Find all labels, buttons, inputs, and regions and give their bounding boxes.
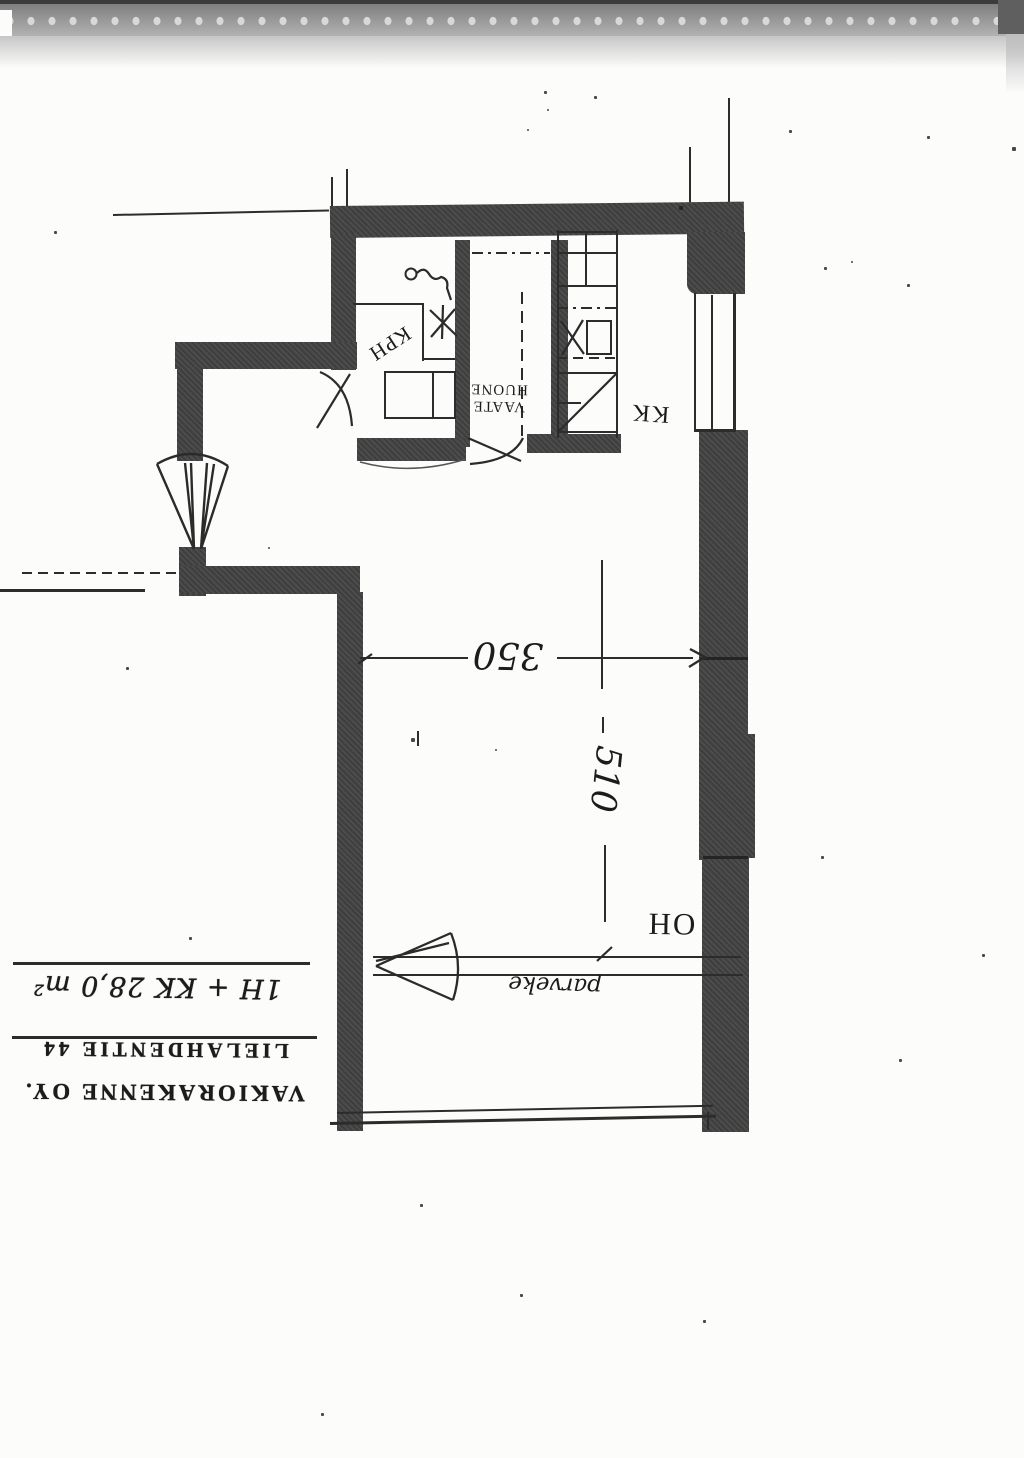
dim-510-line-a — [601, 560, 603, 689]
scan-corner-shade — [998, 0, 1024, 34]
scan-right-shade — [1006, 34, 1024, 94]
scan-speck — [824, 267, 827, 270]
dim-510-line-b — [602, 717, 604, 733]
kph-shower-divider — [432, 373, 434, 417]
vaate-dashdot-line — [472, 252, 550, 254]
room-label-kk: KK — [625, 394, 675, 429]
plan-mark-dash — [417, 731, 419, 746]
binding-holes-strip — [0, 4, 1024, 36]
scan-speck — [547, 109, 549, 111]
kph-sink-icon — [430, 305, 457, 339]
kitchen-line-5 — [557, 402, 581, 404]
kph-counter-line — [424, 358, 455, 360]
toilet-icon — [406, 269, 417, 280]
kitchen-line-top — [557, 231, 618, 233]
scan-speck — [54, 231, 57, 234]
balcony-rail-line-1 — [337, 1105, 713, 1114]
window-line-2 — [711, 295, 713, 432]
wall-entry-top — [175, 342, 357, 369]
scan-speck — [703, 1320, 706, 1323]
scan-speck — [851, 261, 853, 263]
scan-speck — [821, 856, 824, 859]
scan-speck — [594, 96, 597, 99]
dim-510-text: 510 — [576, 743, 635, 814]
toilet-outline — [417, 270, 451, 300]
kitchen-dashdot — [557, 307, 617, 309]
kitchen-line-bottom — [557, 431, 618, 433]
wall-hall-bottom-a — [357, 438, 466, 461]
scan-speck — [268, 547, 270, 549]
balcony-wall-line-1 — [373, 956, 741, 958]
scan-notch — [0, 10, 12, 36]
company-text: VAKIORAKENNE OY. — [8, 1077, 320, 1108]
wall-right-joint-2 — [703, 856, 748, 859]
scan-speck — [520, 1294, 523, 1297]
wall-right-joint-1 — [700, 657, 748, 660]
kph-shower-box — [384, 371, 456, 419]
kitchen-line-4 — [557, 372, 618, 374]
window-line-1 — [694, 293, 696, 432]
scan-speck — [789, 130, 792, 133]
dim-350-line-a — [360, 657, 468, 659]
scan-speck — [907, 284, 910, 287]
scan-speck — [544, 91, 547, 94]
entry-door-swing — [157, 454, 228, 549]
exterior-line-up-1 — [689, 147, 691, 208]
kitchen-counter-box — [586, 320, 612, 355]
wall-living-left — [337, 592, 363, 1131]
kitchen-cabinet-left-edge — [557, 230, 559, 438]
room-label-parveke: parveke — [496, 967, 613, 1003]
room-label-kph: KPH — [357, 314, 424, 375]
scan-speck — [982, 954, 985, 957]
balcony-rail-cross — [707, 1112, 709, 1130]
scan-fade-shade — [0, 36, 1024, 68]
wall-right-corner-block — [687, 232, 745, 294]
scan-speck — [527, 129, 529, 131]
balcony-door-swing — [376, 933, 458, 1000]
scan-speck — [126, 667, 129, 670]
scan-speck — [1012, 147, 1016, 151]
wall-hall-bottom-b — [527, 434, 621, 453]
wall-entry-bottom — [179, 566, 360, 594]
wall-entry-left-upper — [177, 367, 203, 461]
dim-350-text: 350 — [466, 628, 551, 681]
dim-350-line-b — [557, 657, 693, 659]
kph-door-swing — [317, 372, 352, 428]
scanned-floor-plan-page: KPH VAATE HUONE KK OH parveke 350 510 1H… — [0, 0, 1024, 1458]
room-label-vaate-line2: HUONE — [470, 379, 528, 397]
dim-510-tick — [597, 947, 612, 961]
kph-partition-v — [422, 304, 424, 361]
scan-speck — [679, 206, 683, 210]
wall-right-bump — [748, 734, 755, 858]
room-label-vaate-line1: VAATE — [473, 397, 526, 415]
scan-speck — [495, 749, 497, 751]
kph-partition-h — [353, 303, 424, 305]
wall-vaate-kitchen — [551, 240, 568, 441]
exterior-line-left — [113, 209, 329, 216]
apartment-type-area-text: 1H + KK 28,0 m² — [6, 961, 309, 1010]
dim-510-line-c — [604, 845, 606, 922]
scan-speck — [321, 1413, 324, 1416]
scan-speck — [899, 1059, 902, 1062]
scan-speck — [420, 1204, 423, 1207]
kitchen-dash-line — [557, 357, 617, 359]
wall-right-upper — [699, 430, 748, 860]
kitchen-stove-divider — [585, 232, 587, 287]
exterior-line-up-2 — [728, 98, 730, 208]
balcony-rail-line-2 — [330, 1115, 716, 1125]
scan-speck — [927, 136, 930, 139]
kitchen-line-2 — [557, 252, 618, 254]
address-text: LIELAHDENTIE 44 — [12, 1036, 317, 1065]
vaate-door-swing — [468, 438, 523, 464]
scan-speck — [189, 937, 192, 940]
room-label-oh: OH — [641, 903, 702, 944]
kitchen-line-3 — [557, 285, 618, 287]
kitchen-cabinet-front-edge — [616, 230, 618, 438]
exterior-line-entry-2 — [0, 589, 145, 592]
plan-mark-dot — [411, 738, 415, 742]
window-line-3 — [733, 293, 736, 432]
wall-right-lower — [702, 858, 749, 1132]
room-label-vaatehuone: VAATE HUONE — [466, 375, 533, 418]
exterior-line-entry-1 — [22, 572, 180, 574]
window-sill-line — [694, 429, 736, 432]
